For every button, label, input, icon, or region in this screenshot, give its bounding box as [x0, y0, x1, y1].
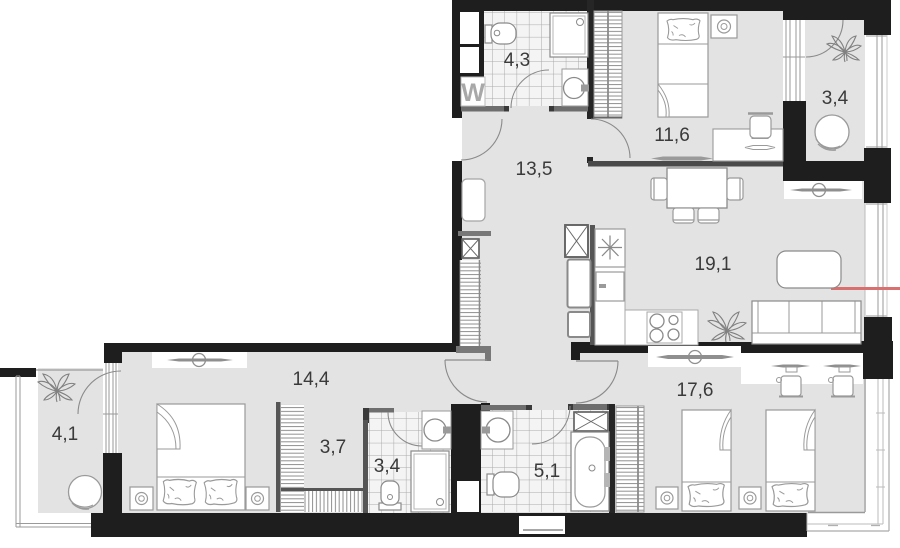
svg-text:19,1: 19,1: [695, 254, 732, 275]
svg-text:11,6: 11,6: [654, 125, 690, 146]
svg-text:3,7: 3,7: [320, 437, 346, 458]
svg-text:17,6: 17,6: [677, 380, 714, 401]
svg-text:4,3: 4,3: [504, 50, 530, 71]
svg-text:3,4: 3,4: [822, 88, 849, 109]
svg-text:3,4: 3,4: [374, 456, 401, 477]
svg-text:13,5: 13,5: [516, 159, 553, 180]
svg-text:4,1: 4,1: [52, 424, 78, 445]
svg-text:5,1: 5,1: [534, 461, 560, 482]
svg-text:14,4: 14,4: [293, 369, 330, 390]
svg-text:W: W: [461, 79, 485, 107]
